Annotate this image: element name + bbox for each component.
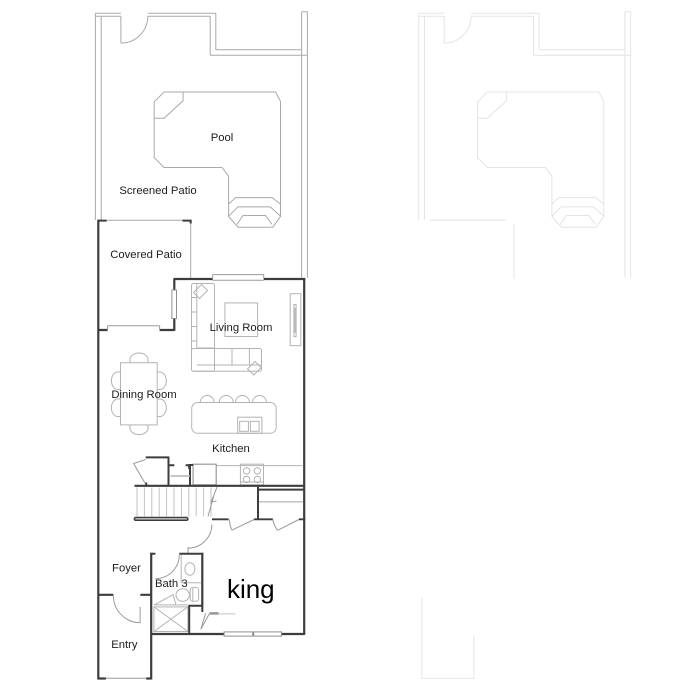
svg-text:Bath 3: Bath 3 [155, 578, 188, 590]
svg-text:Foyer: Foyer [112, 563, 141, 575]
svg-text:Screened Patio: Screened Patio [119, 185, 196, 197]
svg-text:Kitchen: Kitchen [212, 443, 250, 455]
svg-text:king: king [227, 574, 275, 604]
svg-text:Covered Patio: Covered Patio [110, 249, 182, 261]
svg-text:Living Room: Living Room [210, 322, 273, 334]
svg-text:Dining Room: Dining Room [111, 389, 176, 401]
svg-text:Pool: Pool [211, 132, 234, 144]
svg-text:Entry: Entry [111, 639, 138, 651]
